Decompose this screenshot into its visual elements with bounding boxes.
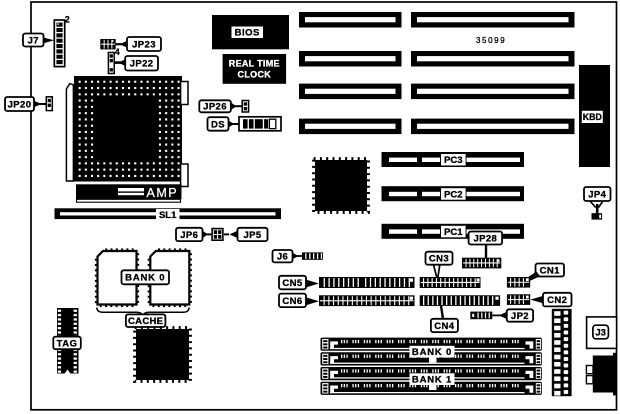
svg-text:BANK 0: BANK 0: [412, 347, 452, 358]
svg-text:J3: J3: [595, 327, 606, 338]
svg-text:CACHE: CACHE: [128, 316, 163, 327]
svg-text:JP4: JP4: [588, 189, 606, 200]
svg-text:CLOCK: CLOCK: [238, 70, 272, 80]
svg-text:REAL TIME: REAL TIME: [229, 59, 280, 69]
svg-text:CN1: CN1: [540, 265, 561, 276]
svg-text:JP28: JP28: [473, 233, 497, 244]
svg-text:CN5: CN5: [282, 278, 303, 289]
svg-text:JP26: JP26: [203, 102, 227, 113]
svg-text:PC3: PC3: [444, 155, 462, 166]
svg-text:PC2: PC2: [444, 189, 462, 200]
svg-text:JP23: JP23: [132, 39, 156, 50]
svg-text:BIOS: BIOS: [235, 28, 260, 39]
svg-text:2: 2: [65, 15, 70, 25]
svg-text:JP6: JP6: [180, 230, 198, 241]
svg-text:J6: J6: [277, 252, 288, 263]
svg-text:4: 4: [115, 47, 120, 57]
svg-text:TAG: TAG: [57, 338, 78, 349]
svg-text:CN2: CN2: [547, 295, 567, 306]
svg-text:JP22: JP22: [130, 59, 154, 70]
svg-text:CN3: CN3: [429, 254, 449, 265]
svg-text:DS: DS: [211, 119, 225, 130]
svg-text:BANK 0: BANK 0: [125, 273, 165, 284]
svg-text:JP5: JP5: [243, 230, 261, 241]
svg-text:J7: J7: [28, 35, 39, 46]
svg-text:BANK 1: BANK 1: [412, 375, 452, 386]
svg-text:AMP: AMP: [147, 186, 179, 200]
svg-text:KBD: KBD: [583, 112, 602, 122]
svg-text:35099: 35099: [476, 36, 506, 45]
svg-text:CN6: CN6: [282, 296, 302, 307]
svg-text:SL1: SL1: [159, 210, 177, 221]
svg-text:JP20: JP20: [8, 99, 32, 110]
svg-text:JP2: JP2: [511, 311, 529, 322]
svg-text:CN4: CN4: [434, 321, 455, 332]
svg-text:PC1: PC1: [444, 227, 463, 238]
